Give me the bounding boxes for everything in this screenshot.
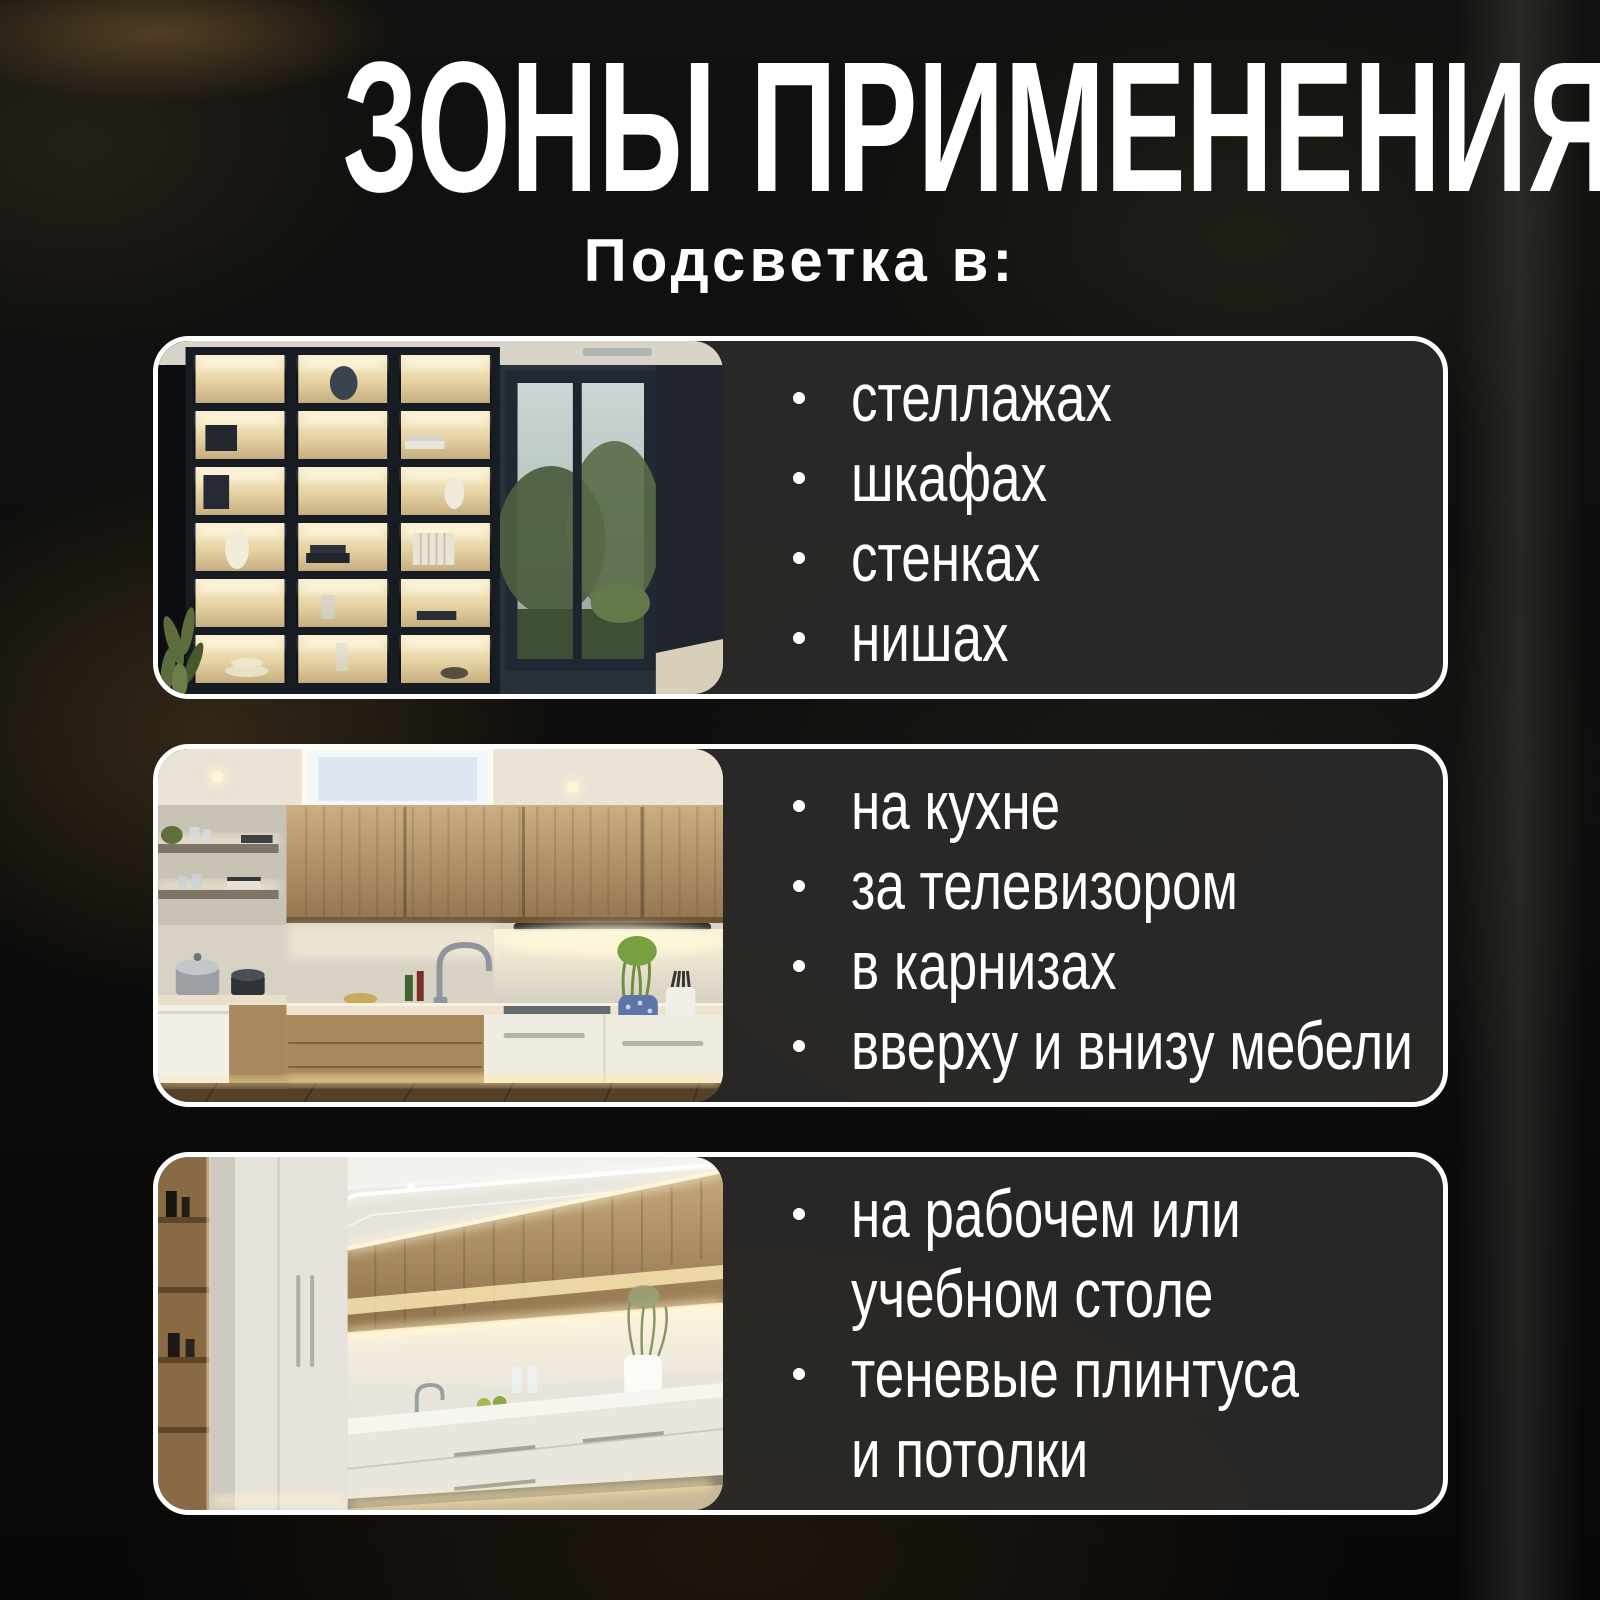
shelving-photo	[158, 341, 723, 694]
page-subtitle: Подсветка в:	[0, 228, 1600, 294]
bullet-text: стенках	[851, 518, 1040, 598]
bullet-list: на кухне за телевизором в карнизах вверх…	[723, 749, 1448, 1102]
bullet-dot-icon	[793, 1368, 805, 1380]
kitchen-photo	[158, 749, 723, 1102]
bullet-list: на рабочем или учебном столе теневые пли…	[723, 1157, 1448, 1510]
bullet-dot-icon	[793, 1208, 805, 1220]
bullet-item: за телевизором	[793, 846, 1448, 926]
bullet-item: теневые плинтуса и потолки	[793, 1334, 1425, 1494]
card-shelving: стеллажах шкафах стенках нишах	[153, 336, 1448, 699]
bullet-text: шкафах	[851, 438, 1047, 518]
bullet-dot-icon	[793, 392, 805, 404]
bullet-text: теневые плинтуса и потолки	[851, 1334, 1299, 1494]
card-kitchen: на кухне за телевизором в карнизах вверх…	[153, 744, 1448, 1107]
bullet-text: на кухне	[851, 766, 1060, 846]
bullet-item: в карнизах	[793, 926, 1448, 1006]
bullet-list: стеллажах шкафах стенках нишах	[723, 341, 1443, 694]
bullet-item: на рабочем или учебном столе	[793, 1174, 1425, 1334]
galley-photo	[158, 1157, 723, 1510]
bullet-item: вверху и внизу мебели	[793, 1006, 1448, 1086]
bullet-dot-icon	[793, 960, 805, 972]
card-galley: на рабочем или учебном столе теневые пли…	[153, 1152, 1448, 1515]
header: ЗОНЫ ПРИМЕНЕНИЯ Подсветка в:	[0, 28, 1600, 294]
bullet-dot-icon	[793, 1040, 805, 1052]
bullet-item: на кухне	[793, 766, 1448, 846]
bullet-text: за телевизором	[851, 846, 1238, 926]
bullet-dot-icon	[793, 472, 805, 484]
bullet-text: стеллажах	[851, 358, 1112, 438]
page-title: ЗОНЫ ПРИМЕНЕНИЯ	[0, 28, 1600, 228]
bullet-item: нишах	[793, 598, 1415, 678]
bullet-text: вверху и внизу мебели	[851, 1006, 1413, 1086]
bullet-item: стеллажах	[793, 358, 1415, 438]
bullet-dot-icon	[793, 880, 805, 892]
bullet-item: стенках	[793, 518, 1415, 598]
infographic-poster: ЗОНЫ ПРИМЕНЕНИЯ Подсветка в:	[0, 0, 1600, 1600]
bullet-dot-icon	[793, 800, 805, 812]
bullet-dot-icon	[793, 632, 805, 644]
cards-list: стеллажах шкафах стенках нишах	[153, 336, 1448, 1515]
bullet-item: шкафах	[793, 438, 1415, 518]
bullet-text: нишах	[851, 598, 1008, 678]
bullet-text: на рабочем или учебном столе	[851, 1174, 1241, 1334]
bullet-dot-icon	[793, 552, 805, 564]
bullet-text: в карнизах	[851, 926, 1117, 1006]
